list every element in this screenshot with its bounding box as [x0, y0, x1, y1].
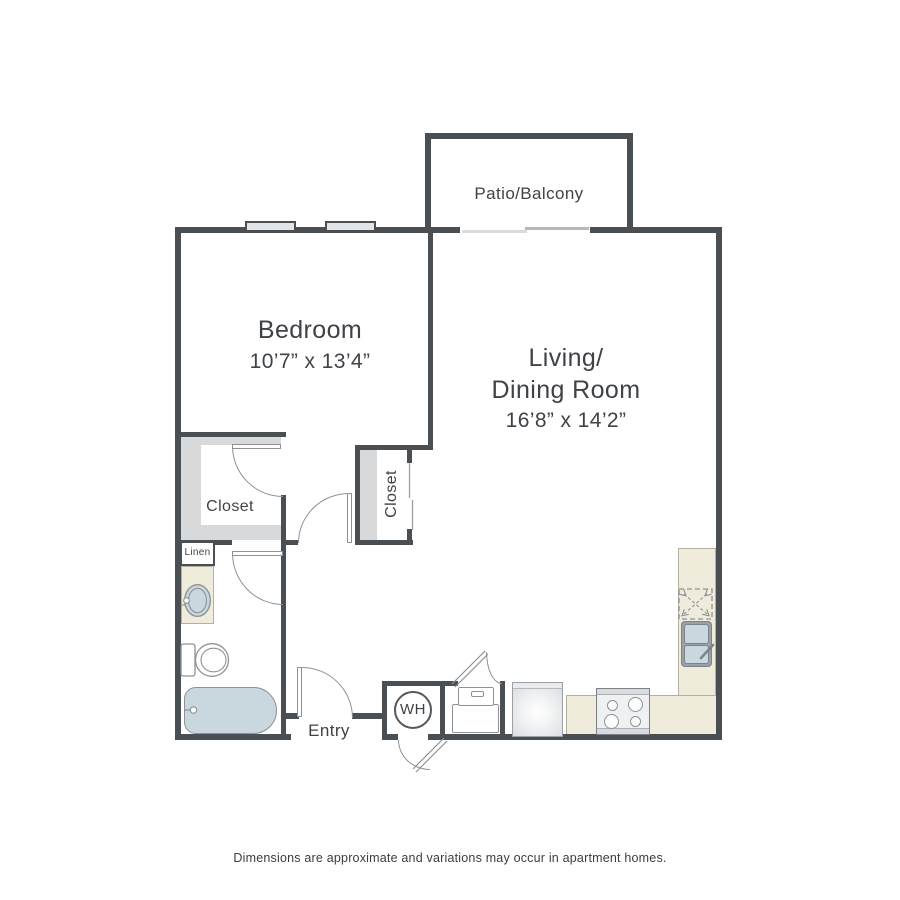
- floor-plan: Linen WH: [0, 0, 900, 900]
- disclaimer-text: Dimensions are approximate and variation…: [0, 851, 900, 865]
- bedroom-name: Bedroom: [210, 316, 410, 345]
- bedroom-label: Bedroom 10’7” x 13’4”: [210, 316, 410, 374]
- living-dims: 16’8” x 14’2”: [466, 409, 666, 433]
- closet-slider-lines: [410, 463, 413, 530]
- door-leaf-diagonal: [452, 651, 488, 687]
- door-leaf-diagonal: [413, 738, 447, 772]
- closet-right-label: Closet: [383, 444, 401, 544]
- closet-left-label: Closet: [180, 498, 280, 516]
- living-line2: Dining Room: [466, 376, 666, 405]
- entry-label: Entry: [294, 721, 364, 741]
- bathroom-sink: [182, 585, 210, 617]
- living-dining-label: Living/ Dining Room 16’8” x 14’2”: [466, 344, 666, 433]
- bedroom-dims: 10’7” x 13’4”: [210, 350, 410, 374]
- linework-layer: [0, 0, 900, 900]
- tub-faucet-icon: [184, 707, 197, 713]
- patio-label: Patio/Balcony: [429, 184, 629, 204]
- living-line1: Living/: [466, 344, 666, 373]
- toilet: [181, 644, 229, 677]
- kitchen-faucet-icon: [701, 645, 713, 658]
- refrigerator-space: [679, 589, 712, 619]
